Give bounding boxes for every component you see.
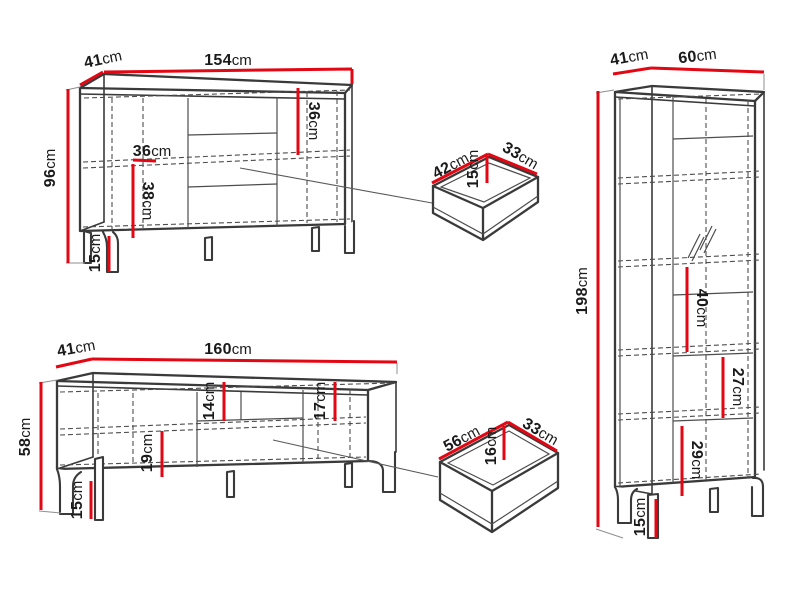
sideboard-middle-leg: [205, 237, 212, 260]
sideboard-section-edges: [188, 97, 277, 228]
cabinet-width-line: [651, 68, 764, 72]
sideboard-depth-line: [80, 72, 103, 85]
sideboard-interior-width-label: 36cm: [133, 143, 171, 160]
small-drawer-height-label: 15cm: [465, 150, 482, 188]
sideboard-right-interior-label: 36cm: [305, 102, 322, 140]
cabinet-height-label: 198cm: [574, 267, 591, 315]
tall-cabinet-diagram: 41cm 60cm 198cm 40cm 27cm 29cm 15cm: [574, 46, 764, 538]
sideboard-drawer-leader-line: [240, 168, 432, 203]
cabinet-dashed-verticals: [706, 99, 748, 481]
tv-stand-dashed-bottom: [60, 457, 366, 465]
cabinet-glass-door-icon: [688, 226, 716, 261]
sideboard-leg-height-label: 15cm: [87, 234, 104, 272]
tv-stand-left-interior-label: 19cm: [139, 434, 156, 472]
sideboard-front-right-leg: [312, 227, 319, 251]
cabinet-dashed-shelves: [618, 94, 761, 483]
tv-stand-depth-label: 41cm: [56, 337, 97, 360]
sideboard-depth-label: 41cm: [83, 47, 124, 72]
sideboard-height-label: 96cm: [42, 149, 59, 187]
cabinet-depth-line: [613, 68, 651, 74]
tv-stand-right-middle-leg: [345, 463, 352, 487]
cabinet-extension-lines: [596, 74, 764, 538]
diagram-canvas: 41cm 154cm 96cm 36cm 38cm 15cm 36cm 42cm…: [0, 0, 800, 600]
sideboard-dashed-shelves: [83, 150, 350, 168]
cabinet-middle-leg: [710, 488, 718, 512]
cabinet-upper-shelf-label: 40cm: [693, 289, 710, 327]
cabinet-front-outline: [615, 92, 755, 487]
tv-stand-niche-height-label: 14cm: [201, 382, 218, 420]
cabinet-depth-label: 41cm: [609, 46, 650, 69]
cabinet-leg-height-label: 15cm: [632, 498, 649, 536]
furniture-dimension-diagram: 41cm 154cm 96cm 36cm 38cm 15cm 36cm 42cm…: [0, 0, 800, 600]
sideboard-width-label: 154cm: [204, 52, 252, 69]
tv-stand-height-label: 58cm: [17, 418, 34, 456]
large-drawer-height-label: 16cm: [483, 427, 500, 465]
sideboard-back-right-leg: [345, 221, 354, 253]
tv-stand-drawer-leader-line: [273, 440, 438, 477]
tv-stand-right-interior-label: 17cm: [312, 382, 329, 420]
tv-stand-back-left-leg: [95, 457, 103, 520]
tv-stand-right-leg: [368, 452, 395, 492]
tv-stand-width-line: [92, 359, 397, 362]
large-drawer-diagram: 56cm 16cm 33cm: [439, 415, 561, 532]
cabinet-lower-shelf-label: 29cm: [688, 441, 705, 479]
small-drawer-diagram: 42cm 15cm 33cm: [430, 139, 541, 240]
sideboard-diagram: 41cm 154cm 96cm 36cm 38cm 15cm 36cm: [42, 47, 432, 272]
cabinet-width-label: 60cm: [677, 46, 717, 68]
tv-stand-diagram: 41cm 160cm 58cm 15cm 19cm 14cm 17cm: [17, 337, 438, 520]
cabinet-right-leg: [752, 478, 763, 516]
tv-stand-width-label: 160cm: [204, 341, 252, 358]
sideboard-top-face: [80, 74, 352, 93]
cabinet-middle-shelf-label: 27cm: [729, 368, 746, 406]
tv-stand-leg-height-label: 15cm: [69, 481, 86, 519]
sideboard-interior-width-line: [133, 160, 156, 161]
tv-stand-middle-leg: [227, 471, 234, 497]
tv-stand-depth-line: [56, 359, 92, 367]
sideboard-interior-height-label: 38cm: [139, 182, 156, 220]
